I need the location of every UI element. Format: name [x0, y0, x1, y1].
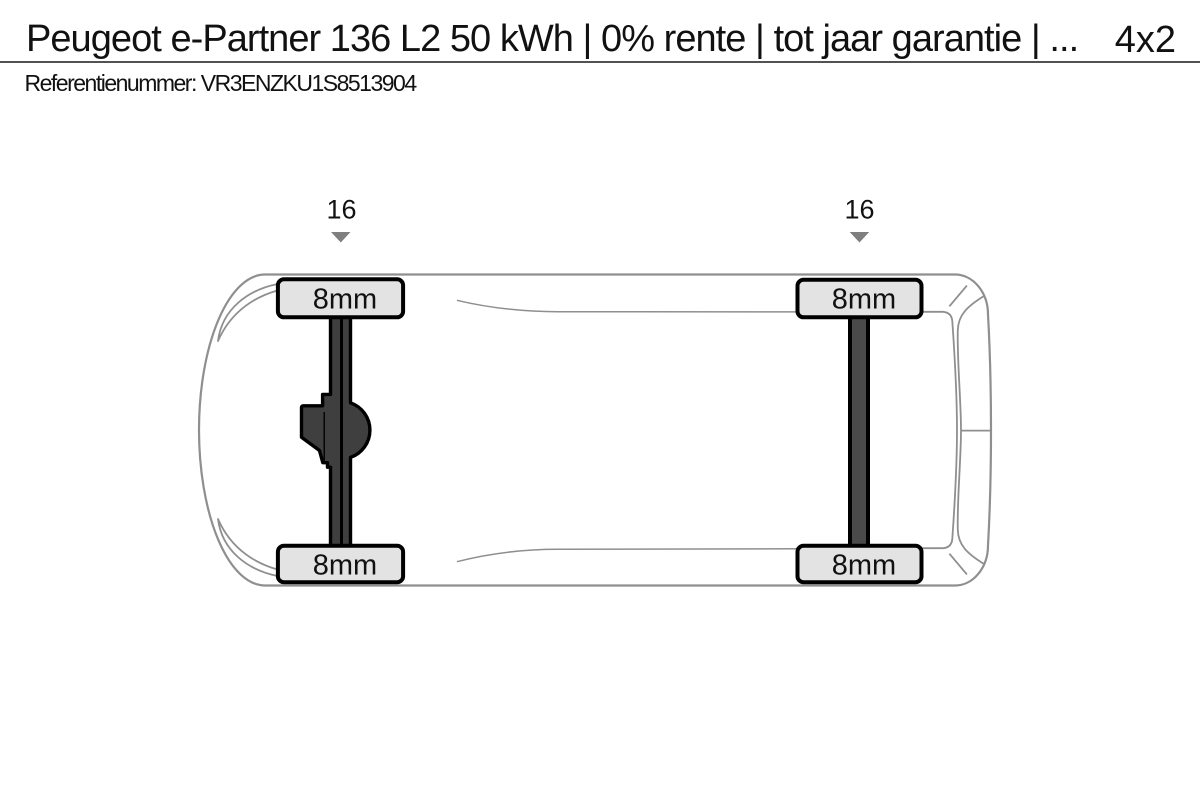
svg-text:8mm: 8mm [313, 550, 377, 582]
svg-text:8mm: 8mm [313, 284, 377, 316]
svg-text:8mm: 8mm [832, 284, 896, 316]
svg-text:Referentienummer: VR3ENZKU1S85: Referentienummer: VR3ENZKU1S8513904 [25, 70, 418, 96]
svg-text:4x2: 4x2 [1115, 19, 1176, 61]
svg-text:16: 16 [844, 195, 874, 225]
svg-text:8mm: 8mm [832, 550, 896, 582]
svg-text:16: 16 [326, 195, 356, 225]
svg-text:Peugeot e-Partner 136 L2 50 kW: Peugeot e-Partner 136 L2 50 kWh | 0% ren… [26, 18, 1078, 60]
